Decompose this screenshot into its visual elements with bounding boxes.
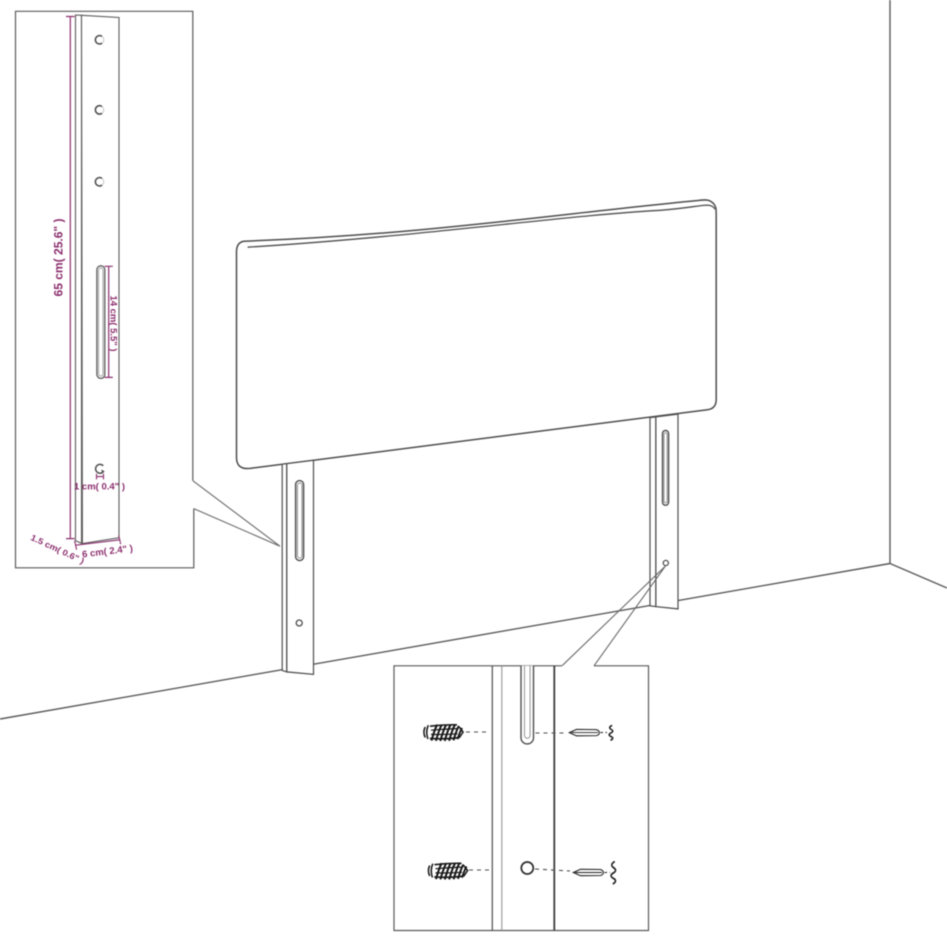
svg-text:65 cm( 25.6" ): 65 cm( 25.6" ) — [52, 219, 66, 297]
svg-text:1 cm( 0.4" ): 1 cm( 0.4" ) — [74, 482, 125, 493]
svg-text:14 cm( 5.5" ): 14 cm( 5.5" ) — [109, 296, 119, 352]
